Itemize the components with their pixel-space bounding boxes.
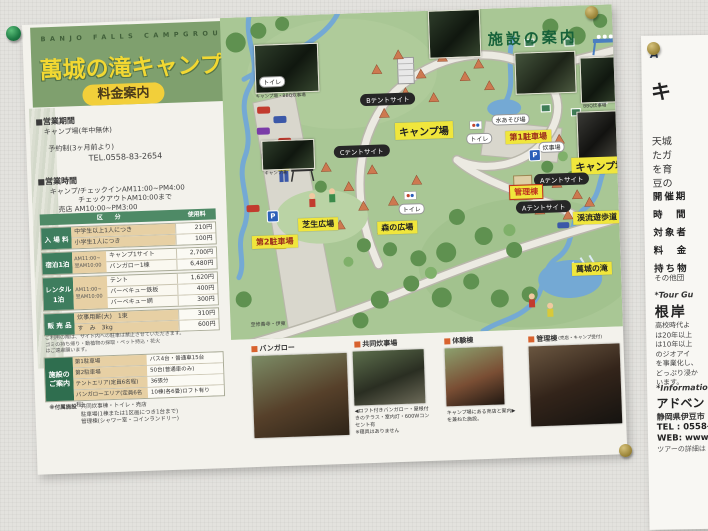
organization-address: 静岡県伊豆市: [657, 411, 705, 423]
organization-web: WEB: www.a: [657, 433, 708, 444]
experience-photo: [445, 346, 505, 406]
fee-row-price: 310円: [178, 308, 218, 319]
tour-detail-note: ツアーの詳細は: [657, 444, 706, 455]
banjo-falls-label: 萬城の滝: [572, 262, 612, 276]
flyer-field-label: 時 間: [653, 206, 688, 221]
map-photo-4: [514, 51, 576, 95]
fee-row-price: 6,480円: [176, 258, 216, 269]
toilet-label-3: トイレ: [466, 133, 492, 145]
green-pushpin-icon: [6, 26, 21, 41]
tour-flyer-poster: A キ 天城たガを育豆の 開催期時 間対象者料 金持ち物 その他団 *Tour …: [641, 35, 708, 530]
poster-title: 萬城の滝キャンプ場: [39, 44, 246, 85]
parking-p-icon: P: [529, 149, 541, 161]
fee-group: 宿泊1泊AM11:00~翌AM10:00キャンプ1サイト2,700円バンガロー1…: [41, 246, 218, 275]
english-campground-name: BANJO FALLS CAMPGROUND: [40, 28, 242, 43]
flyer-other-line: その他団: [654, 272, 684, 284]
water-play-label: 水あそび場: [491, 113, 529, 125]
experience-heading: 体験棟: [444, 335, 473, 346]
admin-heading-text: 管理棟: [536, 334, 557, 345]
fee-group: 入 場 料中学生以上1人につき210円小学生1人につき100円: [40, 221, 217, 250]
map-photo-2-caption: キャンプ場: [264, 170, 287, 177]
facility-table-rows: 第1駐車場バス4台・普通車15台第2駐車場50台(普通車のみ)テントエリア(定員…: [73, 352, 224, 400]
flyer-field-label: 対象者: [653, 224, 688, 239]
fee-group-name: 宿泊1泊: [42, 252, 73, 274]
bungalow-caption: ◀ロフト付きバンガロー・屋根付 きのテラス・室内灯・600Wコン セント有 ※寝…: [355, 406, 434, 437]
square-bullet-icon: [444, 338, 450, 344]
flyer-title-fragment: キ: [651, 75, 672, 104]
fee-row-price: 2,700円: [176, 247, 216, 258]
fee-row-desc: バンガロー1棟: [106, 260, 176, 272]
square-bullet-icon: [528, 336, 534, 342]
fee-row-price: 300円: [178, 294, 218, 305]
flyer-field-label: 料 金: [654, 242, 689, 257]
fee-guide-badge: 料金案内: [82, 82, 165, 106]
fee-group-time: AM11:00~翌AM10:00: [73, 276, 108, 309]
gold-pushpin-icon: [619, 444, 632, 457]
bungalow-heading: バンガロー: [251, 343, 295, 355]
flyer-intro-paragraph: 天城たガを育豆の: [641, 35, 708, 36]
campground-map-poster: BANJO FALLS CAMPGROUND 萬城の滝キャンプ場 料金案内 ■営…: [22, 4, 627, 474]
fee-table: 区 分 使用料 入 場 料中学生以上1人につき210円小学生1人につき100円宿…: [40, 208, 220, 336]
fee-row-price: 400円: [177, 283, 217, 294]
organization-name: アドベン: [656, 394, 704, 412]
facility-value: 10棟(各6畳)ロフト有り: [148, 385, 224, 398]
admin-photo: [529, 343, 623, 426]
fee-group-time: AM11:00~翌AM10:00: [72, 251, 107, 273]
road-direction-note: 至修善寺・伊東: [250, 320, 285, 328]
lawn-plaza-label: 芝生広場: [298, 217, 338, 231]
kitchen-heading-text: 共同炊事場: [362, 338, 397, 349]
toilet-label-2: トイレ: [398, 203, 424, 215]
attached-facilities: ※付属施設 共同炊事棟・トイレ・売店駐車場(1棟または1区画につき1台まで)管理…: [49, 399, 230, 428]
bungalow-photo: [252, 353, 350, 438]
guide-name: 根岸: [655, 301, 687, 322]
flyer-field-list: 開催期時 間対象者料 金持ち物: [641, 35, 708, 36]
fee-col-fee: 使用料: [178, 208, 216, 220]
fee-table-rows: 入 場 料中学生以上1人につき210円小学生1人につき100円宿泊1泊AM11:…: [40, 221, 220, 336]
admin-caption: キャンプ場にある売店と案内▶ を兼ねた施設。: [447, 408, 517, 424]
campground-map: キャンプ場・BBQ炊事場 キャンプ場 BBQ炊事場 キャンプ場 施設の案内 トイ…: [220, 4, 623, 339]
kitchen-heading: 共同炊事場: [354, 338, 397, 349]
tour-guide-label: *Tour Gu: [654, 290, 693, 300]
campground-label-upper: キャンプ場: [395, 121, 453, 140]
gold-pushpin-icon: [647, 42, 660, 55]
fee-row-desc: バーベキュー網: [108, 296, 178, 308]
fee-row-price: 1,620円: [177, 272, 217, 283]
guide-bio: 高校時代よは20年以上は10年以上のジオアイを事業化し、どっぷり浸かいます。: [641, 35, 708, 36]
fee-row-price: 210円: [175, 222, 215, 233]
tent-site-b-label: Bテントサイト: [360, 92, 416, 106]
square-bullet-icon: [251, 346, 257, 352]
season-line1: キャンプ場(年中無休): [44, 125, 113, 137]
admin-building-label: 管理棟: [509, 184, 544, 200]
tent-site-c-label: Cテントサイト: [334, 144, 390, 158]
bungalow-heading-text: バンガロー: [259, 343, 295, 354]
attached-lines: 共同炊事棟・トイレ・売店駐車場(1棟または1区画につき1台まで)管理棟(シャワー…: [81, 401, 180, 427]
fee-group-name: 販 売 品: [44, 313, 75, 335]
information-label: *Information: [656, 383, 708, 393]
toilet-label-1: トイレ: [259, 76, 285, 88]
fee-group-name: 入 場 料: [41, 227, 72, 249]
flyer-field-label: 開催期: [653, 188, 688, 203]
facility-guide-title: 施設の案内: [487, 26, 578, 50]
service-building: [397, 57, 414, 84]
gold-pushpin-icon: [585, 6, 598, 19]
admin-heading: 管理棟 (売店・キャンプ受付): [528, 332, 602, 345]
map-photo-5-caption: BBQ炊事場: [583, 103, 606, 110]
fee-row-price: 100円: [175, 233, 215, 244]
forest-plaza-label: 森の広場: [377, 220, 417, 234]
tent-site-a-label-2: Aテントサイト: [516, 200, 572, 214]
admin-heading-sub: (売店・キャンプ受付): [558, 334, 602, 342]
map-photo-5: [579, 56, 622, 103]
square-bullet-icon: [354, 341, 360, 347]
phone-number: TEL.0558-83-2654: [89, 151, 163, 163]
map-photo-3: [428, 9, 482, 59]
facility-table: 施設の ご案内 第1駐車場バス4台・普通車15台第2駐車場50台(普通車のみ)テ…: [44, 351, 225, 402]
attached-label: ※付属施設: [49, 404, 77, 427]
fee-group-name: レンタル 1泊: [43, 277, 74, 310]
facility-table-title: 施設の ご案内: [45, 357, 74, 401]
kitchen-photo: [353, 349, 426, 405]
photo-of-campground-poster: BANJO FALLS CAMPGROUND 萬城の滝キャンプ場 料金案内 ■営…: [0, 0, 708, 531]
parking2-label: 第2駐車場: [252, 235, 298, 250]
bottom-photo-strip: バンガロー 共同炊事場 ◀ロフト付きバンガロー・屋根付 きのテラス・室内灯・60…: [248, 327, 627, 464]
map-photo-2: [261, 139, 315, 171]
stream-path-label: 渓流遊歩道: [573, 210, 621, 225]
cookhouse-label: 炊事場: [538, 141, 564, 153]
map-photo-6: [576, 110, 620, 159]
organization-tel: TEL : 0558-99: [657, 422, 708, 433]
facility-name: バンガローエリア(定員6名程): [74, 388, 148, 401]
experience-heading-text: 体験棟: [452, 335, 473, 346]
parking-p-icon: P: [267, 210, 279, 222]
fee-group: レンタル 1泊AM11:00~翌AM10:00テント1,620円バーベキュー鉄板…: [42, 271, 219, 311]
